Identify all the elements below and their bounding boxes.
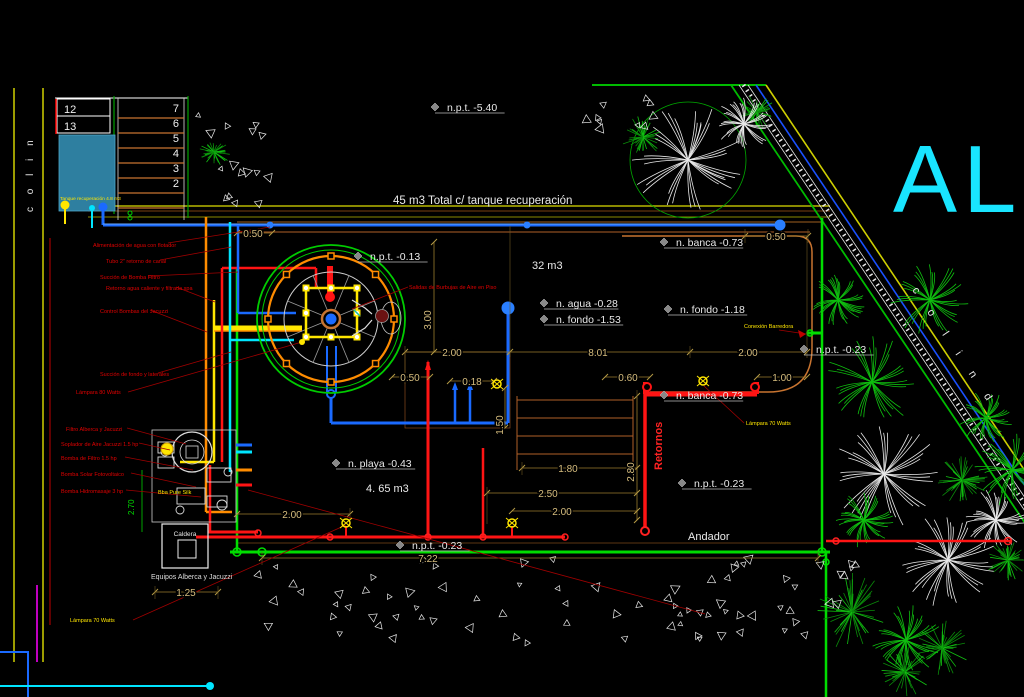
level-npt-023-bottom-text: n.p.t. -0.23 bbox=[412, 540, 462, 552]
dim-200-right: 2.00 bbox=[738, 348, 758, 359]
dim-180: 1.80 bbox=[558, 464, 578, 475]
callout-lampara-80: Lámpara 80 Watts bbox=[76, 390, 121, 396]
person-head bbox=[376, 310, 389, 323]
beach-volume-label: 4. 65 m3 bbox=[366, 483, 409, 495]
retornos-label: Retornos bbox=[653, 422, 665, 470]
dim-100: 1.00 bbox=[772, 373, 792, 384]
level-npt-540-text: n.p.t. -5.40 bbox=[447, 102, 497, 114]
dim-300-vert: 3.00 bbox=[423, 310, 434, 330]
level-fondo-153-text: n. fondo -1.53 bbox=[556, 314, 621, 326]
dim-200-top: 2.00 bbox=[442, 348, 462, 359]
dim-125: 1.25 bbox=[176, 588, 196, 599]
stair-row-number: 12 bbox=[64, 104, 76, 116]
dim-050-mid: 0.50 bbox=[400, 373, 420, 384]
caldera-label: Caldera bbox=[174, 531, 197, 538]
dim-200-steps: 2.00 bbox=[552, 507, 572, 518]
stair-step-number: 7 bbox=[173, 103, 179, 115]
pipe-node bbox=[502, 302, 515, 315]
lamp-icon bbox=[697, 376, 709, 386]
dim-150-vert: 1.50 bbox=[495, 415, 506, 435]
stair-step-number: 5 bbox=[173, 133, 179, 145]
callout-conexion-barredora: Conexión Barredora bbox=[744, 324, 794, 330]
lamp-icon bbox=[491, 379, 503, 389]
andador-label: Andador bbox=[688, 531, 730, 543]
logo-al: AL bbox=[893, 126, 1022, 233]
dim-018: 0.18 bbox=[462, 377, 482, 388]
callout-control-bombas: Control Bombas del Jacuzzi bbox=[100, 309, 168, 315]
callout-bomba-solar: Bomba Solar Fotovoltaico bbox=[61, 472, 124, 478]
boundary-left-label: c o l i n bbox=[25, 135, 36, 212]
pool-plan-drawing: n.p.t. -5.40n. banca -0.73n.p.t. -0.13n.… bbox=[0, 0, 1024, 697]
total-volume-label: 45 m3 Total c/ tanque recuperación bbox=[393, 195, 572, 207]
callout-filtro: Filtro Alberca y Jacuzzi bbox=[66, 427, 122, 433]
callout-lampara-70-bottom: Lámpara 70 Watts bbox=[70, 618, 115, 624]
lamp-icon bbox=[340, 518, 352, 528]
dim-060: 0.60 bbox=[618, 373, 638, 384]
callout-burbujas: Salidas de Burbujas de Aire en Piso bbox=[409, 285, 496, 291]
callout-bba-pure: Bba Pure Silk bbox=[158, 490, 192, 496]
callout-retorno-caliente: Retorno agua caliente y filtrada spa bbox=[106, 286, 193, 292]
callout-soplador: Soplador de Aire Jacuzzi 1.5 hp bbox=[61, 442, 138, 448]
level-banca-mid-text: n. banca -0.73 bbox=[676, 390, 743, 402]
pool-volume-label: 32 m3 bbox=[532, 260, 563, 272]
dim-280-vert: 2.80 bbox=[626, 462, 637, 482]
lamp-icon bbox=[506, 518, 518, 528]
dim-270: 2.70 bbox=[127, 499, 136, 515]
dim-801: 8.01 bbox=[588, 348, 608, 359]
dim-722: 7.22 bbox=[418, 554, 438, 565]
level-agua-028-text: n. agua -0.28 bbox=[556, 298, 618, 310]
dim-050-topleft: 0.50 bbox=[243, 229, 263, 240]
dim-050-topright: 0.50 bbox=[766, 232, 786, 243]
callout-bomba-hidro: Bomba Hidromasaje 3 hp bbox=[61, 489, 123, 495]
equipos-label: Equipos Alberca y Jacuzzi bbox=[151, 574, 233, 581]
stair-row-number: 13 bbox=[64, 121, 76, 133]
level-npt-013-text: n.p.t. -0.13 bbox=[370, 251, 420, 263]
level-fondo-118-text: n. fondo -1.18 bbox=[680, 304, 745, 316]
tank-label: Tanque recuperación 4.8 m3 bbox=[60, 196, 121, 202]
stair-step-number: 2 bbox=[173, 178, 179, 190]
cad-canvas[interactable]: n.p.t. -5.40n. banca -0.73n.p.t. -0.13n.… bbox=[0, 0, 1024, 697]
level-npt-023-right-text: n.p.t. -0.23 bbox=[816, 344, 866, 356]
pipe-end-node bbox=[775, 220, 786, 231]
level-playa-043-text: n. playa -0.43 bbox=[348, 458, 412, 470]
dim-200-bottomleft: 2.00 bbox=[282, 510, 302, 521]
callout-alimentacion: Alimentación de agua con flotador bbox=[93, 243, 176, 249]
callout-bomba-filtro: Bomba de Filtro 1.5 hp bbox=[61, 456, 117, 462]
jacuzzi-drain bbox=[326, 314, 337, 325]
stair-step-number: 4 bbox=[173, 148, 179, 160]
stair-step-number: 6 bbox=[173, 118, 179, 130]
callout-lampara-70-bench: Lámpara 70 Watts bbox=[746, 421, 791, 427]
level-banca-top-text: n. banca -0.73 bbox=[676, 237, 743, 249]
stair-step-number: 3 bbox=[173, 163, 179, 175]
level-npt-023-mid-text: n.p.t. -0.23 bbox=[694, 478, 744, 490]
callout-succion-fondo: Succión de fondo y laterales bbox=[100, 372, 169, 378]
callout-tubo-retorno: Tubo 2" retorno de canal bbox=[106, 259, 166, 265]
dim-250: 2.50 bbox=[538, 489, 558, 500]
callout-succion-filtro: Succión de Bomba Filtro bbox=[100, 275, 160, 281]
